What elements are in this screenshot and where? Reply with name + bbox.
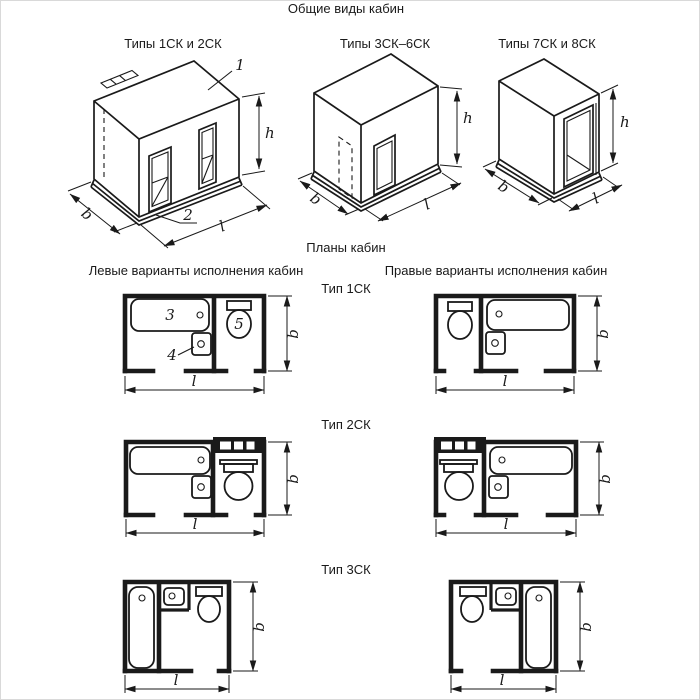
bathtub-drain: [197, 312, 203, 318]
toilet-bowl: [445, 472, 473, 500]
plan-1ck-left: 3 4 5 l b: [116, 289, 306, 401]
right-variants-header: Правые варианты исполнения кабин: [351, 263, 641, 278]
cabin-box: [314, 54, 438, 203]
iso-label-7ck-8ck: Типы 7СК и 8СК: [447, 36, 647, 51]
callout-leader-1: [208, 71, 232, 90]
vent-hole: [220, 442, 231, 450]
toilet-tank: [444, 464, 473, 472]
l-extension-lines: [365, 173, 460, 221]
h-extension-lines: [242, 93, 265, 175]
bathtub-drain: [536, 595, 542, 601]
dim-l: l: [500, 671, 505, 689]
dim-l: l: [192, 372, 197, 390]
bathtub: [490, 447, 572, 474]
plan-3ck-left: b l: [119, 576, 284, 700]
bathtub-drain: [198, 457, 204, 463]
type-label-3ck: Тип 3СК: [1, 562, 691, 577]
drawing-canvas: Общие виды кабин Типы 1СК и 2СК Типы 3СК…: [0, 0, 700, 700]
washbasin-drain: [198, 484, 205, 491]
iso-view-types-3ck-6ck: h b l: [296, 51, 484, 236]
callout-base: 2: [182, 206, 193, 224]
vent-hole: [234, 442, 243, 450]
dim-b: b: [250, 622, 268, 632]
page-title: Общие виды кабин: [1, 1, 691, 16]
dim-b: b: [307, 189, 325, 209]
plan-1ck-right: l b: [426, 289, 616, 401]
vent-hole: [441, 442, 452, 450]
washbasin: [192, 333, 211, 355]
callout-roof: 1: [235, 56, 245, 74]
washbasin-drain: [505, 593, 511, 599]
washbasin: [164, 588, 184, 605]
dim-b: b: [284, 329, 302, 339]
bathtub-drain: [496, 311, 502, 317]
bathtub: [526, 587, 551, 668]
dim-l: l: [217, 217, 228, 236]
washbasin-drain: [495, 484, 502, 491]
plan-2ck-left: l b: [116, 435, 306, 550]
h-extension-lines: [601, 85, 618, 171]
callout-bath: 3: [165, 306, 175, 324]
bathtub: [487, 300, 569, 330]
iso-view-types-7ck-8ck: h b l: [481, 51, 671, 231]
h-extension-lines: [440, 87, 462, 167]
b-dimension-line: [485, 169, 539, 203]
plan-2ck-right: l b: [426, 435, 616, 550]
iso-label-1ck-2ck: Типы 1СК и 2СК: [73, 36, 273, 51]
left-variants-header: Левые варианты исполнения кабин: [51, 263, 341, 278]
b-extension-lines: [483, 161, 552, 205]
callout-washbasin: 4: [166, 346, 177, 364]
washbasin-drain: [169, 593, 175, 599]
toilet-tank: [227, 301, 251, 310]
door-frame-1: [152, 152, 168, 207]
toilet-bowl: [461, 596, 483, 622]
toilet-bowl: [198, 596, 220, 622]
washbasin: [496, 588, 516, 605]
dim-b: b: [594, 329, 612, 339]
dim-b: b: [495, 177, 513, 197]
dim-l: l: [504, 515, 509, 533]
callout-toilet: 5: [234, 315, 244, 333]
dim-b: b: [577, 622, 595, 632]
iso-view-types-1ck-2ck: 1 2 h b l: [56, 56, 291, 261]
b-extension-lines: [298, 173, 359, 215]
type-label-2ck: Тип 2СК: [1, 417, 691, 432]
vent-hole: [247, 442, 255, 450]
door-frame-2: [202, 128, 213, 184]
dim-h: h: [463, 109, 473, 127]
dim-b: b: [596, 474, 614, 484]
washbasin: [192, 476, 211, 498]
dim-b: b: [284, 474, 302, 484]
toilet-tank: [196, 587, 222, 596]
toilet-tank: [460, 587, 486, 596]
washbasin-drain: [198, 341, 205, 348]
toilet-bowl: [225, 472, 253, 500]
bathtub: [129, 587, 154, 668]
toilet-tank: [224, 464, 253, 472]
plan-3ck-right: b l: [446, 576, 611, 700]
bathtub-drain: [139, 595, 145, 601]
dim-l: l: [193, 515, 198, 533]
plans-title: Планы кабин: [1, 240, 691, 255]
dim-h: h: [265, 124, 275, 142]
dim-l: l: [174, 671, 179, 689]
washbasin: [486, 332, 505, 354]
door-frame: [377, 141, 392, 190]
toilet-bowl: [448, 311, 472, 339]
washbasin-drain: [492, 340, 499, 347]
dim-b: b: [78, 204, 97, 224]
toilet-tank: [448, 302, 472, 311]
bathtub-drain: [499, 457, 505, 463]
vent-hole: [455, 442, 464, 450]
vent-hole: [468, 442, 476, 450]
dim-l: l: [421, 195, 433, 213]
door-opening: [564, 105, 593, 187]
dim-h: h: [620, 113, 630, 131]
dim-l: l: [503, 372, 508, 390]
washbasin: [489, 476, 508, 498]
dim-l: l: [590, 189, 602, 207]
